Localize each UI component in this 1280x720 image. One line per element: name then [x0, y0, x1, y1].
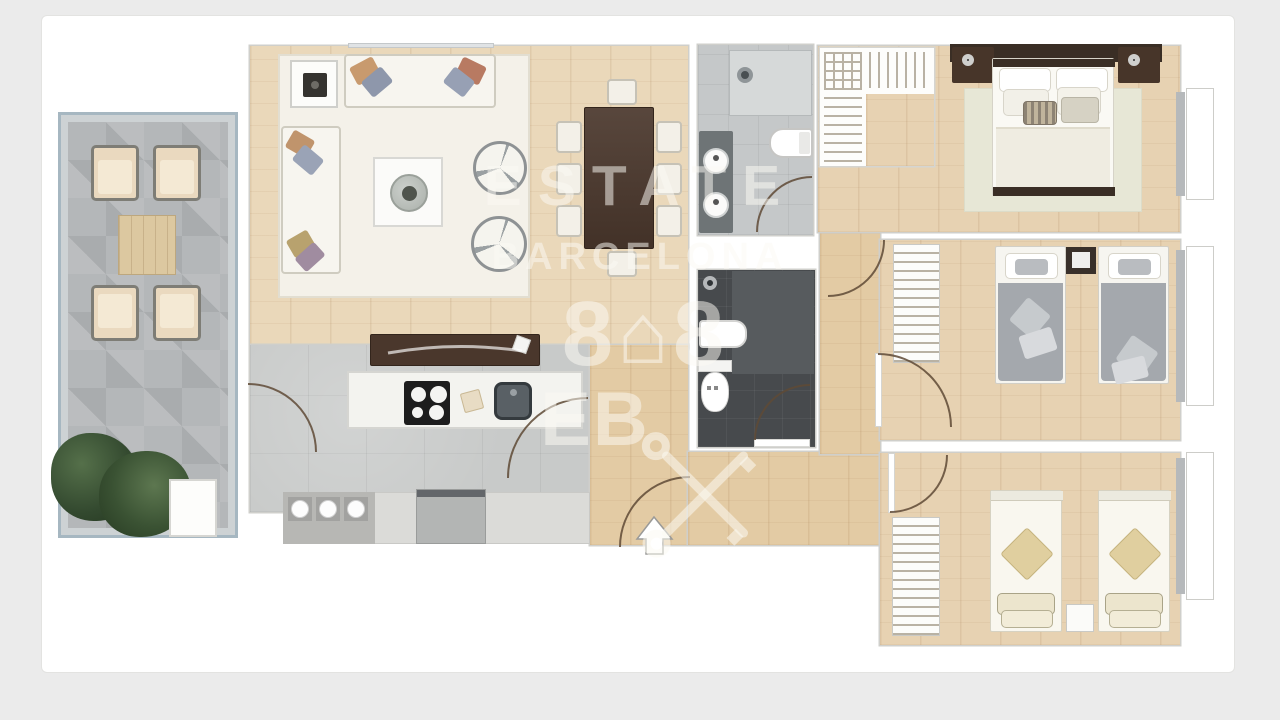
- kitchen-appliance: [416, 489, 486, 544]
- bed-blanket: [1101, 283, 1166, 381]
- window-bay: [1186, 246, 1214, 406]
- round-lounge-chair: [471, 216, 527, 272]
- dining-chair: [607, 79, 637, 105]
- dining-chair: [556, 121, 582, 153]
- dining-chair: [556, 205, 582, 237]
- shower: [729, 50, 812, 116]
- wardrobe: [893, 244, 940, 363]
- sofa-left: [281, 126, 341, 274]
- inner-pillow: [1015, 259, 1048, 275]
- stool-seat: [319, 500, 337, 518]
- burner: [429, 405, 444, 420]
- dining-table: [584, 107, 654, 249]
- nightstand: [1066, 604, 1094, 632]
- chair-cushion: [98, 160, 132, 194]
- cutting-board: [460, 389, 484, 413]
- dining-chair: [607, 251, 637, 277]
- faucet: [510, 389, 517, 396]
- stool: [344, 497, 368, 521]
- toilet: [769, 128, 813, 158]
- stool-seat: [347, 500, 365, 518]
- dining-chair: [656, 163, 682, 195]
- dining-chair: [656, 121, 682, 153]
- sink-basin: [703, 148, 729, 174]
- nightstand: [1066, 247, 1096, 274]
- bed-pillow: [1001, 610, 1053, 628]
- flush-button: [707, 386, 711, 390]
- stool: [288, 497, 312, 521]
- wardrobe: [892, 517, 940, 636]
- terrace-armchair: [153, 145, 201, 201]
- dining-chair: [556, 163, 582, 195]
- appliance-edge: [417, 490, 485, 497]
- faucet: [713, 155, 719, 161]
- faucet: [713, 199, 719, 205]
- stool: [316, 497, 340, 521]
- chair-cushion: [160, 160, 194, 194]
- terrace: [58, 112, 238, 538]
- bed-footboard: [991, 491, 1063, 501]
- toilet: [698, 360, 732, 414]
- toilet-tank: [799, 132, 810, 154]
- toilet-tank: [698, 360, 732, 372]
- burner: [430, 386, 447, 403]
- stool-seat: [291, 500, 309, 518]
- single-bed: [990, 490, 1062, 632]
- bed-footboard: [993, 187, 1115, 196]
- window-sill: [348, 43, 494, 48]
- single-bed: [995, 246, 1066, 384]
- bed-headboard: [993, 59, 1115, 67]
- window-bay: [1186, 452, 1214, 600]
- sink-basin: [703, 192, 729, 218]
- bathroom-sink: [699, 320, 747, 348]
- sofa-top: [344, 54, 496, 108]
- window-sill: [1176, 458, 1185, 594]
- bed-pillow: [1109, 610, 1161, 628]
- window-sill: [1176, 250, 1185, 402]
- tan-pillow: [1108, 527, 1162, 581]
- bed-footboard: [1099, 491, 1171, 501]
- nightstand: [1118, 47, 1160, 83]
- window-bay: [1186, 88, 1214, 200]
- door-leaf: [875, 353, 882, 427]
- bed-duvet: [996, 127, 1110, 187]
- toilet-bowl: [701, 372, 729, 412]
- closet-hanging-clothes: [824, 52, 862, 162]
- shower-head: [703, 276, 717, 290]
- kitchen-sink: [494, 382, 532, 420]
- accent-cushion: [1061, 97, 1099, 123]
- terrace-armchair: [91, 145, 139, 201]
- terrace-table: [118, 215, 176, 275]
- shower-head: [737, 67, 753, 83]
- bed-blanket: [998, 283, 1063, 381]
- accent-cushion: [1023, 101, 1057, 125]
- stove-hob: [404, 381, 450, 425]
- burner: [412, 407, 423, 418]
- fireplace-dot: [311, 81, 319, 89]
- chair-cushion: [160, 294, 194, 328]
- flush-button: [714, 386, 718, 390]
- tan-pillow: [1000, 527, 1054, 581]
- lamp: [962, 54, 974, 66]
- round-lounge-chair: [473, 141, 527, 195]
- nightstand-top: [1072, 252, 1090, 268]
- shower-zone: [732, 271, 814, 374]
- coffee-table: [373, 157, 443, 227]
- hallway-floor: [820, 230, 880, 454]
- hallway-floor: [688, 452, 880, 545]
- door-leaf: [754, 439, 810, 447]
- door-leaf: [888, 453, 895, 513]
- planter-box: [169, 479, 217, 537]
- single-bed: [1098, 490, 1170, 632]
- double-bed: [992, 58, 1114, 196]
- inner-pillow: [1118, 259, 1151, 275]
- window-sill: [1176, 92, 1185, 196]
- chair-cushion: [98, 294, 132, 328]
- terrace-armchair: [153, 285, 201, 341]
- terrace-armchair: [91, 285, 139, 341]
- master-bedroom-floor-notch: [866, 94, 934, 166]
- bathroom-vanity: [699, 131, 733, 233]
- lamp: [1128, 54, 1140, 66]
- burner: [411, 387, 426, 402]
- single-bed: [1098, 246, 1169, 384]
- fireplace-unit: [290, 60, 338, 108]
- kitchen-island: [347, 371, 583, 429]
- floor-plan-image: ESTATE BARCELONA 8 ⌂ 8 EB: [0, 0, 1280, 720]
- hallway-floor: [590, 345, 688, 545]
- dining-chair: [656, 205, 682, 237]
- nightstand: [952, 47, 994, 83]
- table-plant: [402, 186, 417, 201]
